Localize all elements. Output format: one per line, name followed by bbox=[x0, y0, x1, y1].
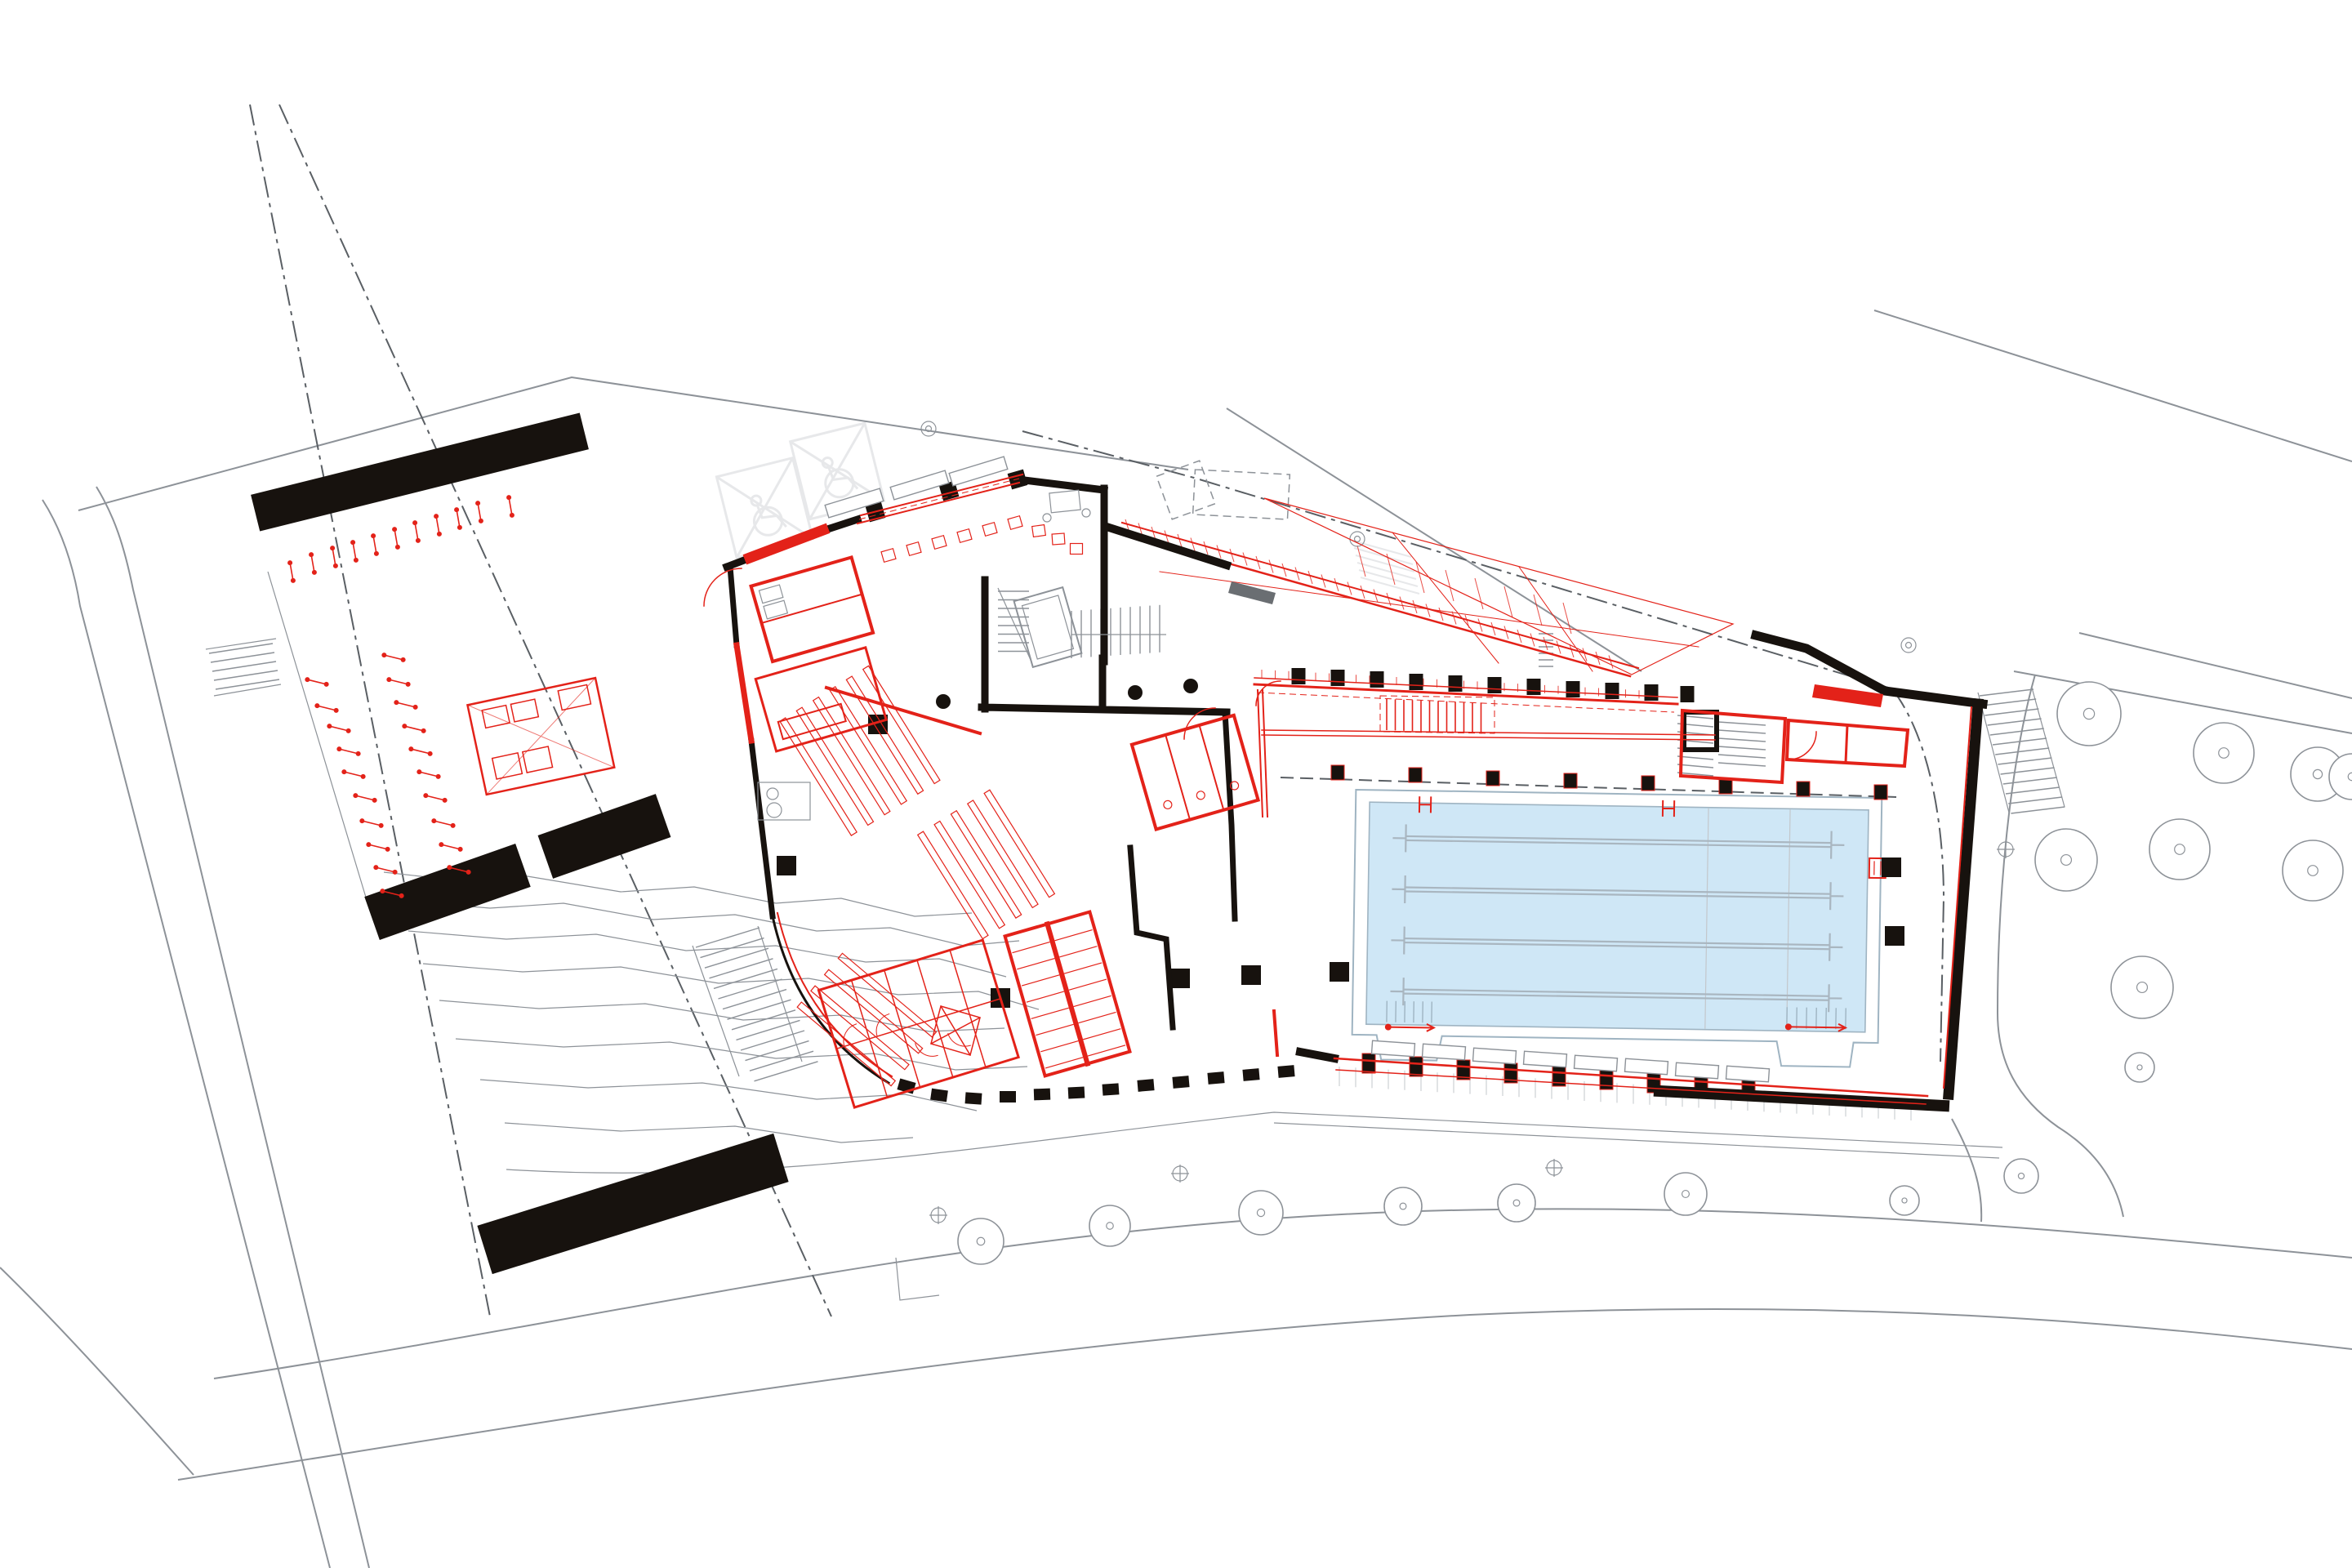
hatch-line bbox=[2008, 797, 2062, 804]
hatch-line bbox=[1718, 746, 1766, 750]
hatch-line bbox=[2003, 777, 2057, 784]
hatch-line bbox=[1204, 541, 1208, 555]
column-square bbox=[1000, 1091, 1016, 1102]
column-square bbox=[1207, 1071, 1224, 1085]
tick-dot bbox=[346, 728, 351, 733]
bench-strip bbox=[838, 953, 936, 1037]
hatch-line bbox=[710, 959, 773, 978]
hatch-line bbox=[1557, 641, 1561, 654]
hatch-line bbox=[1282, 563, 1286, 577]
hatch-line bbox=[714, 969, 777, 988]
parking-stall-tick bbox=[355, 795, 374, 800]
tick-dot bbox=[421, 728, 426, 733]
tree-icon bbox=[1384, 1187, 1422, 1225]
hatch-line bbox=[1031, 1008, 1069, 1018]
column-square bbox=[1719, 779, 1732, 794]
bench-rows-b bbox=[918, 790, 1055, 938]
hatch-line bbox=[1400, 597, 1404, 610]
context-building-bar bbox=[364, 844, 530, 940]
hatch-line bbox=[1321, 575, 1325, 588]
column-square bbox=[1242, 1068, 1259, 1081]
tick-dot bbox=[454, 507, 459, 512]
hatch-line bbox=[1074, 996, 1111, 1006]
tick-dot bbox=[386, 677, 391, 682]
parking-stall-tick bbox=[394, 529, 398, 547]
hatch-line bbox=[1054, 930, 1092, 941]
tick-dot bbox=[413, 705, 418, 710]
tick-dot bbox=[291, 578, 296, 583]
column-square bbox=[1032, 525, 1046, 537]
hatch-line bbox=[1347, 582, 1352, 595]
hatch-line bbox=[1583, 648, 1587, 661]
tick-dot bbox=[374, 551, 379, 556]
tick-dot bbox=[341, 769, 346, 774]
hatch-line bbox=[1439, 608, 1443, 621]
parking-stall-tick bbox=[311, 555, 314, 572]
tick-dot bbox=[401, 657, 406, 662]
contour-line bbox=[505, 1123, 913, 1143]
hatch-line bbox=[1543, 637, 1548, 650]
column-square bbox=[1362, 1053, 1375, 1073]
tick-dot bbox=[466, 870, 471, 875]
survey-marker-cross bbox=[1545, 1159, 1563, 1177]
hatch-line bbox=[1334, 578, 1339, 591]
column-square bbox=[930, 1089, 948, 1102]
column-square bbox=[1292, 668, 1306, 684]
hatch-line bbox=[1475, 578, 1483, 609]
tree-icon bbox=[1890, 1186, 1919, 1215]
hatch-line bbox=[1069, 979, 1107, 990]
survey-marker-cross bbox=[1171, 1165, 1189, 1183]
tree-icon bbox=[1498, 1184, 1535, 1222]
hatch-line bbox=[701, 938, 764, 958]
column-square bbox=[949, 457, 1008, 486]
column-square bbox=[1068, 1086, 1085, 1098]
hatch-line bbox=[1064, 963, 1102, 973]
bench-strip bbox=[934, 821, 1004, 928]
hatch-line bbox=[1356, 555, 1414, 572]
column-square bbox=[1645, 684, 1659, 701]
hatch-line bbox=[1998, 758, 2051, 764]
tick-dot bbox=[416, 538, 421, 543]
hatch-line bbox=[1361, 577, 1419, 594]
column-square bbox=[1641, 776, 1655, 791]
tree-icon bbox=[1664, 1173, 1707, 1215]
tick-dot bbox=[312, 570, 317, 575]
hatch-line bbox=[1027, 991, 1064, 1002]
parking-stall-tick bbox=[425, 795, 444, 800]
tick-dot bbox=[412, 520, 417, 525]
hatch-line bbox=[1718, 730, 1766, 733]
tick-dot bbox=[395, 545, 400, 550]
tick-dot bbox=[443, 798, 448, 803]
parking-stall-tick bbox=[396, 702, 415, 707]
column-square bbox=[1564, 773, 1577, 788]
bench-strip bbox=[951, 811, 1021, 918]
hatch-line bbox=[1256, 556, 1260, 569]
tick-dot bbox=[402, 724, 407, 728]
column-square bbox=[1241, 965, 1261, 985]
column-square bbox=[1372, 1040, 1415, 1057]
ring-marker-core bbox=[1355, 537, 1361, 542]
column-round bbox=[936, 694, 951, 709]
bench-rows-a bbox=[780, 666, 940, 835]
column-square bbox=[1071, 544, 1083, 555]
locker-block bbox=[1005, 912, 1130, 1076]
hatch-line bbox=[1478, 619, 1482, 632]
parking-stall-tick bbox=[436, 516, 439, 534]
tick-dot bbox=[393, 870, 398, 875]
tick-dot bbox=[392, 527, 397, 532]
tick-dot bbox=[373, 865, 378, 870]
parking-stall-tick bbox=[362, 821, 381, 826]
hatch-line bbox=[1609, 656, 1613, 669]
column-square bbox=[1409, 768, 1422, 782]
tick-dot bbox=[399, 893, 404, 898]
hatch-line bbox=[1059, 947, 1097, 957]
column-square bbox=[1486, 771, 1499, 786]
curved-facade-columns bbox=[897, 1065, 1294, 1105]
hatch-line bbox=[1359, 570, 1418, 586]
hatch-line bbox=[214, 670, 278, 680]
hatch-line bbox=[696, 928, 759, 947]
hatch-line bbox=[1013, 942, 1050, 952]
hatch-line bbox=[1361, 586, 1365, 599]
context-building-bar bbox=[251, 412, 589, 531]
column-square bbox=[1331, 765, 1344, 780]
tick-dot bbox=[287, 560, 292, 565]
parking-stall-tick bbox=[317, 706, 336, 710]
column-square bbox=[1882, 857, 1901, 877]
hatch-line bbox=[216, 679, 279, 689]
hatch-line bbox=[1191, 538, 1195, 551]
tick-dot bbox=[437, 532, 442, 537]
hatch-line bbox=[211, 653, 274, 662]
tick-dot bbox=[324, 682, 329, 687]
tick-dot bbox=[336, 746, 341, 751]
tick-dot bbox=[356, 751, 361, 756]
parking-stall-tick bbox=[307, 679, 326, 684]
red-stair-outline bbox=[1380, 696, 1494, 733]
tree-icon bbox=[2057, 682, 2121, 746]
hatch-line bbox=[1491, 622, 1495, 635]
tick-dot bbox=[353, 793, 358, 798]
column-square bbox=[1331, 670, 1345, 686]
tick-dot bbox=[371, 533, 376, 538]
tick-dot bbox=[333, 563, 338, 568]
parking-stall-tick bbox=[478, 503, 481, 521]
floor-plan-page bbox=[0, 0, 2352, 1568]
column-square bbox=[1600, 1070, 1613, 1089]
kitchen-room bbox=[751, 557, 874, 661]
parking-stall-tick bbox=[329, 726, 348, 731]
ring-marker-icon bbox=[921, 421, 936, 436]
hatch-line bbox=[2011, 807, 2065, 813]
hatch-line bbox=[1534, 595, 1542, 626]
context-building-bar bbox=[538, 794, 671, 879]
tree-icon bbox=[2004, 1159, 2038, 1193]
tree-icon bbox=[2111, 956, 2173, 1018]
hatch-line bbox=[1040, 1041, 1078, 1052]
bench-strip bbox=[984, 790, 1054, 897]
column-square bbox=[1137, 1079, 1154, 1092]
parking-stall-tick bbox=[373, 536, 376, 554]
hatch-line bbox=[1374, 590, 1378, 603]
ring-marker-icon bbox=[1901, 638, 1916, 653]
column-round bbox=[1128, 685, 1143, 700]
tick-dot bbox=[451, 823, 456, 828]
column-square bbox=[881, 549, 896, 563]
parking-stalls-col-a bbox=[305, 677, 403, 898]
hatch-line bbox=[1243, 553, 1247, 566]
changing-cabins bbox=[818, 940, 1018, 1107]
tick-dot bbox=[423, 793, 428, 798]
tick-dot bbox=[510, 513, 514, 518]
hatch-line bbox=[719, 979, 782, 999]
tick-dot bbox=[458, 847, 463, 852]
tick-dot bbox=[416, 769, 421, 774]
contour-line bbox=[392, 900, 1019, 946]
tick-dot bbox=[381, 653, 386, 657]
parking-stall-tick bbox=[339, 749, 358, 754]
hatch-line bbox=[1504, 586, 1512, 617]
tick-dot bbox=[428, 751, 433, 756]
tree-icon bbox=[2194, 723, 2254, 783]
tick-dot bbox=[394, 700, 399, 705]
tick-dot bbox=[434, 514, 439, 519]
hatch-line bbox=[737, 1020, 800, 1040]
tick-dot bbox=[385, 847, 390, 852]
tree-icon bbox=[2149, 819, 2210, 880]
survey-marker-cross bbox=[1997, 840, 2015, 858]
floor-plan-drawing bbox=[0, 0, 2352, 1568]
tree-icon bbox=[958, 1218, 1004, 1264]
column-square bbox=[957, 529, 972, 543]
tick-dot bbox=[354, 558, 359, 563]
column-square bbox=[982, 523, 997, 537]
column-square bbox=[1410, 674, 1423, 690]
hatch-line bbox=[1995, 748, 2049, 755]
tick-dot bbox=[439, 842, 443, 847]
tick-dot bbox=[309, 552, 314, 557]
tick-dot bbox=[327, 724, 332, 728]
column-square bbox=[1052, 533, 1065, 545]
tick-dot bbox=[380, 889, 385, 893]
column-square bbox=[1330, 962, 1349, 982]
hatch-line bbox=[755, 1062, 818, 1081]
column-square bbox=[1172, 1076, 1189, 1089]
hatch-line bbox=[1718, 722, 1766, 725]
hatch-line bbox=[1517, 630, 1521, 643]
hatch-line bbox=[1990, 728, 2044, 735]
bench-strip bbox=[968, 800, 1038, 907]
column-square bbox=[1170, 969, 1190, 988]
hatch-line bbox=[1718, 755, 1766, 758]
column-square bbox=[1524, 1051, 1567, 1067]
parking-stall-tick bbox=[389, 679, 408, 684]
column-square bbox=[1034, 1089, 1050, 1101]
parking-stall-tick bbox=[353, 542, 356, 560]
parking-stall-tick bbox=[509, 497, 512, 515]
column-square bbox=[906, 542, 921, 556]
column-square bbox=[1797, 782, 1810, 796]
tree-icon bbox=[1089, 1205, 1130, 1246]
hatch-line bbox=[750, 1051, 813, 1071]
column-square bbox=[1726, 1066, 1770, 1082]
hatch-line bbox=[1677, 764, 1713, 768]
hatch-line bbox=[1295, 568, 1299, 581]
tick-dot bbox=[457, 525, 462, 530]
kitchen-sink bbox=[758, 782, 810, 820]
parking-stall-tick bbox=[344, 772, 363, 777]
tree-icon bbox=[2283, 840, 2343, 901]
column-square bbox=[1008, 516, 1022, 530]
column-square bbox=[1874, 785, 1887, 800]
tick-dot bbox=[479, 519, 483, 523]
column-square bbox=[1527, 679, 1541, 695]
hatch-line bbox=[1504, 626, 1508, 639]
hatch-line bbox=[1083, 1029, 1120, 1040]
tick-dot bbox=[447, 865, 452, 870]
hatch-line bbox=[1022, 975, 1059, 986]
hatch-line bbox=[1078, 1012, 1116, 1022]
hatch-line bbox=[2006, 787, 2060, 794]
column-square bbox=[1885, 926, 1904, 946]
tick-dot bbox=[431, 818, 436, 823]
hatch-line bbox=[723, 990, 786, 1009]
column-square bbox=[1449, 675, 1463, 692]
contour-line bbox=[456, 1039, 1027, 1070]
tick-dot bbox=[475, 501, 480, 506]
bike-shelter bbox=[467, 678, 614, 795]
hatch-line bbox=[1718, 738, 1766, 742]
tick-dot bbox=[334, 708, 339, 713]
hatch-line bbox=[1980, 689, 2033, 696]
wc-block bbox=[1132, 715, 1258, 830]
parking-stall-tick bbox=[384, 655, 403, 660]
parking-stall-tick bbox=[419, 772, 438, 777]
round-columns bbox=[936, 679, 1198, 709]
parking-stall-tick bbox=[290, 563, 293, 581]
tick-dot bbox=[350, 540, 355, 545]
hatch-line bbox=[209, 644, 273, 653]
column-square bbox=[1370, 671, 1384, 688]
column-square bbox=[965, 1092, 982, 1104]
parking-stall-tick bbox=[434, 821, 452, 826]
parking-stall-tick bbox=[457, 510, 460, 528]
column-square bbox=[1488, 677, 1502, 693]
context-building-bar bbox=[477, 1134, 788, 1274]
tree-icon bbox=[2125, 1053, 2154, 1082]
column-square bbox=[1575, 1055, 1618, 1071]
parking-stall-tick bbox=[411, 749, 430, 754]
tick-dot bbox=[408, 746, 413, 751]
tick-dot bbox=[361, 774, 366, 779]
dashed-setout-box bbox=[1193, 470, 1290, 519]
cafe-table bbox=[1043, 490, 1090, 522]
hatch-line bbox=[1354, 548, 1413, 564]
column-square bbox=[1676, 1062, 1719, 1079]
column-square bbox=[1606, 683, 1619, 699]
tick-dot bbox=[359, 818, 364, 823]
column-square bbox=[932, 536, 947, 550]
parking-stall-tick bbox=[332, 548, 336, 566]
column-round bbox=[1183, 679, 1198, 693]
column-square bbox=[1423, 1044, 1466, 1060]
tick-dot bbox=[366, 842, 371, 847]
cafe-seats-row bbox=[881, 516, 1083, 563]
column-square bbox=[1473, 1048, 1517, 1064]
bench-strip bbox=[825, 969, 923, 1053]
street-trees bbox=[958, 1159, 2038, 1264]
hatch-line bbox=[1036, 1024, 1073, 1035]
hatch-line bbox=[1718, 763, 1766, 766]
survey-marker-cross bbox=[929, 1206, 947, 1224]
tick-dot bbox=[379, 823, 384, 828]
tick-dot bbox=[330, 546, 335, 550]
column-square bbox=[1681, 686, 1695, 702]
context-building-bars bbox=[251, 412, 789, 1274]
ring-marker-icon bbox=[1350, 532, 1365, 546]
hatch-line bbox=[1677, 756, 1713, 759]
column-square bbox=[777, 856, 796, 875]
tree-icon bbox=[1239, 1191, 1283, 1235]
hatch-line bbox=[705, 948, 768, 968]
tick-dot bbox=[406, 682, 411, 687]
bench-strip bbox=[918, 831, 988, 938]
tick-dot bbox=[372, 798, 377, 803]
hatch-line bbox=[728, 1000, 791, 1019]
column-square bbox=[1410, 1057, 1423, 1076]
tick-dot bbox=[314, 703, 319, 708]
column-square bbox=[1102, 1083, 1120, 1095]
hatch-line bbox=[1426, 604, 1430, 617]
contour-line bbox=[423, 964, 1039, 1009]
hatch-line bbox=[1984, 709, 2038, 715]
pool-hall bbox=[1352, 790, 1886, 1067]
tree-icon bbox=[2035, 829, 2097, 891]
hatch-line bbox=[1988, 719, 2042, 725]
hatch-line bbox=[1017, 959, 1054, 969]
parking-stall-tick bbox=[415, 523, 418, 541]
hatch-line bbox=[212, 661, 276, 671]
hatch-line bbox=[1308, 571, 1312, 584]
hatch-line bbox=[2001, 768, 2055, 774]
column-square bbox=[1566, 681, 1580, 697]
parking-stall-tick bbox=[368, 844, 387, 849]
tick-dot bbox=[305, 677, 310, 682]
parking-stall-tick bbox=[376, 867, 394, 872]
tick-dot bbox=[506, 495, 511, 500]
ring-marker-core bbox=[1906, 643, 1912, 648]
column-square bbox=[1625, 1058, 1668, 1075]
hatch-line bbox=[1357, 563, 1416, 579]
tick-dot bbox=[436, 774, 441, 779]
hatch-line bbox=[1269, 560, 1273, 573]
parking-stall-tick bbox=[404, 726, 423, 731]
parking-stall-tick bbox=[441, 844, 460, 849]
hatch-line bbox=[1178, 534, 1182, 547]
hatch-line bbox=[1230, 549, 1234, 562]
column-square bbox=[1277, 1065, 1294, 1078]
hatch-line bbox=[1530, 634, 1535, 647]
hatch-line bbox=[1217, 546, 1221, 559]
